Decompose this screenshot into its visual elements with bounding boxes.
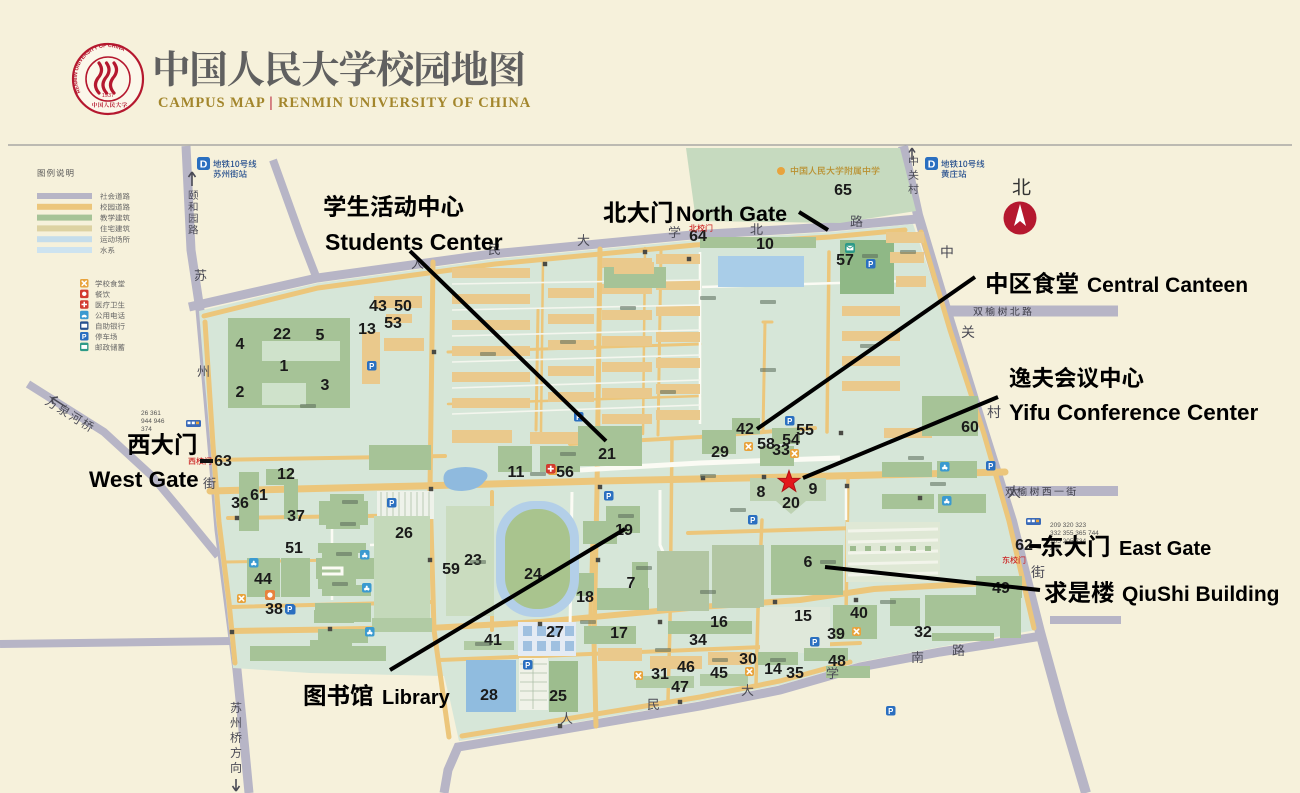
svg-text:59: 59 <box>442 561 460 578</box>
svg-text:West Gate: West Gate <box>89 467 199 492</box>
svg-text:QiuShi Building: QiuShi Building <box>1122 583 1279 606</box>
svg-text:42: 42 <box>736 421 754 438</box>
svg-text:209 320 323: 209 320 323 <box>1050 522 1087 529</box>
svg-text:P: P <box>812 638 817 647</box>
svg-text:41: 41 <box>484 632 502 649</box>
svg-text:35: 35 <box>786 665 804 682</box>
svg-text:8: 8 <box>757 484 766 501</box>
svg-text:36: 36 <box>231 495 249 512</box>
svg-text:P: P <box>868 260 873 269</box>
svg-text:North Gate: North Gate <box>676 202 787 226</box>
svg-text:11: 11 <box>508 464 525 481</box>
svg-text:12: 12 <box>277 466 295 483</box>
svg-text:Library: Library <box>382 687 451 709</box>
svg-text:40: 40 <box>850 605 868 622</box>
svg-text:CAMPUS MAP | RENMIN UNIVERSITY: CAMPUS MAP | RENMIN UNIVERSITY OF CHINA <box>158 95 531 111</box>
svg-text:7: 7 <box>627 575 636 592</box>
svg-text:20: 20 <box>782 495 800 512</box>
svg-text:28: 28 <box>480 687 498 704</box>
svg-text:1937: 1937 <box>102 93 114 99</box>
svg-text:6: 6 <box>804 554 813 571</box>
svg-text:34: 34 <box>689 632 707 649</box>
svg-text:P: P <box>888 707 893 716</box>
svg-text:10: 10 <box>756 236 774 253</box>
svg-text:P: P <box>988 462 993 471</box>
svg-text:5: 5 <box>316 327 325 344</box>
svg-text:30: 30 <box>739 651 757 668</box>
svg-text:Yifu Conference Center: Yifu Conference Center <box>1009 400 1258 425</box>
svg-text:37: 37 <box>287 508 305 525</box>
svg-text:Students Center: Students Center <box>325 229 503 255</box>
svg-text:47: 47 <box>671 679 689 696</box>
svg-text:25: 25 <box>549 688 567 705</box>
svg-text:P: P <box>369 362 374 371</box>
svg-text:46: 46 <box>677 659 695 676</box>
svg-text:51: 51 <box>285 540 303 557</box>
svg-text:P: P <box>606 492 611 501</box>
svg-text:9: 9 <box>809 481 818 498</box>
svg-text:P: P <box>82 334 87 341</box>
svg-text:27: 27 <box>546 624 564 641</box>
svg-text:26: 26 <box>395 525 413 542</box>
svg-text:48: 48 <box>828 653 846 670</box>
svg-text:East Gate: East Gate <box>1119 538 1211 560</box>
svg-text:56: 56 <box>556 464 574 481</box>
svg-text:3: 3 <box>321 377 330 394</box>
svg-text:18: 18 <box>576 589 594 606</box>
svg-text:P: P <box>389 499 394 508</box>
svg-text:17: 17 <box>610 625 628 642</box>
svg-text:65: 65 <box>834 182 852 199</box>
svg-text:P: P <box>787 417 792 426</box>
svg-text:26 361: 26 361 <box>141 410 161 417</box>
svg-text:39: 39 <box>827 626 845 643</box>
svg-text:31: 31 <box>651 666 669 683</box>
svg-text:D: D <box>928 159 936 171</box>
svg-text:33: 33 <box>772 442 790 459</box>
svg-text:944 946: 944 946 <box>141 418 165 425</box>
svg-text:38: 38 <box>265 601 283 618</box>
svg-text:29: 29 <box>711 444 729 461</box>
svg-text:P: P <box>750 516 755 525</box>
svg-text:44: 44 <box>254 571 272 588</box>
svg-text:1: 1 <box>280 358 289 375</box>
svg-text:50: 50 <box>394 298 412 315</box>
svg-text:D: D <box>200 159 208 171</box>
svg-text:45: 45 <box>710 665 728 682</box>
svg-text:2: 2 <box>236 384 245 401</box>
svg-text:53: 53 <box>384 315 402 332</box>
svg-text:32: 32 <box>914 624 932 641</box>
svg-text:Central Canteen: Central Canteen <box>1087 274 1248 297</box>
svg-text:57: 57 <box>836 252 854 269</box>
svg-text:13: 13 <box>358 321 376 338</box>
svg-text:374: 374 <box>141 426 152 433</box>
svg-text:4: 4 <box>236 336 245 353</box>
svg-text:21: 21 <box>598 446 616 463</box>
svg-text:14: 14 <box>764 661 782 678</box>
svg-text:63: 63 <box>214 453 232 470</box>
svg-text:43: 43 <box>369 298 387 315</box>
svg-text:P: P <box>287 605 292 614</box>
svg-text:P: P <box>525 661 530 670</box>
svg-text:15: 15 <box>794 608 812 625</box>
svg-text:60: 60 <box>961 419 979 436</box>
svg-text:61: 61 <box>250 487 268 504</box>
svg-text:22: 22 <box>273 326 291 343</box>
svg-text:16: 16 <box>710 614 728 631</box>
